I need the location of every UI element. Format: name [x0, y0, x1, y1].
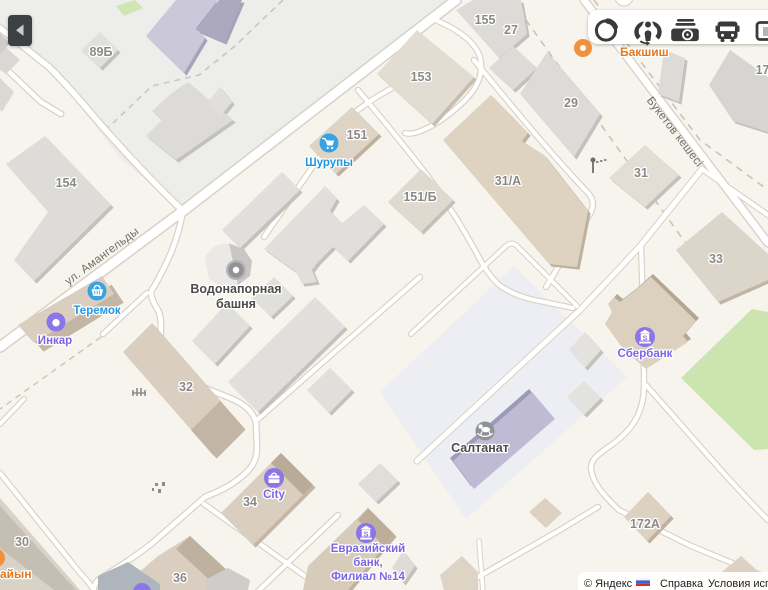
svg-text:Теремок: Теремок: [73, 305, 120, 317]
svg-text:27: 27: [504, 23, 518, 37]
svg-text:Водонапорная: Водонапорная: [190, 282, 281, 296]
svg-text:155: 155: [475, 13, 496, 27]
svg-text:Инкар: Инкар: [38, 335, 72, 347]
svg-text:айын: айын: [0, 567, 32, 581]
svg-text:151: 151: [347, 128, 368, 142]
svg-text:S: S: [642, 333, 647, 342]
svg-text:31: 31: [634, 166, 648, 180]
svg-text:31/А: 31/А: [495, 174, 521, 188]
svg-text:Бакшиш: Бакшиш: [620, 45, 669, 59]
svg-text:33: 33: [709, 252, 723, 266]
svg-text:City: City: [263, 489, 285, 501]
svg-text:Евразийский: Евразийский: [331, 543, 405, 555]
svg-text:29: 29: [564, 96, 578, 110]
svg-text:153: 153: [411, 70, 432, 84]
svg-text:32: 32: [179, 380, 193, 394]
svg-text:34: 34: [243, 495, 257, 509]
svg-text:башня: башня: [216, 297, 256, 311]
svg-text:Условия использования: Условия использования: [708, 578, 768, 590]
svg-text:© Яндекс: © Яндекс: [584, 578, 633, 590]
svg-text:30: 30: [15, 535, 29, 549]
svg-text:151/Б: 151/Б: [403, 190, 436, 204]
svg-text:Салтанат: Салтанат: [451, 441, 509, 455]
svg-text:89Б: 89Б: [90, 45, 113, 59]
svg-text:Сбербанк: Сбербанк: [618, 348, 673, 360]
svg-text:банк,: банк,: [353, 557, 382, 569]
svg-text:172А: 172А: [630, 517, 660, 531]
svg-text:S: S: [363, 529, 368, 538]
svg-text:Филиал №14: Филиал №14: [331, 571, 405, 583]
svg-text:Справка: Справка: [660, 578, 704, 590]
svg-text:154: 154: [56, 176, 77, 190]
svg-text:172: 172: [756, 63, 768, 77]
svg-text:Шурупы: Шурупы: [305, 157, 353, 169]
svg-text:36: 36: [173, 571, 187, 585]
